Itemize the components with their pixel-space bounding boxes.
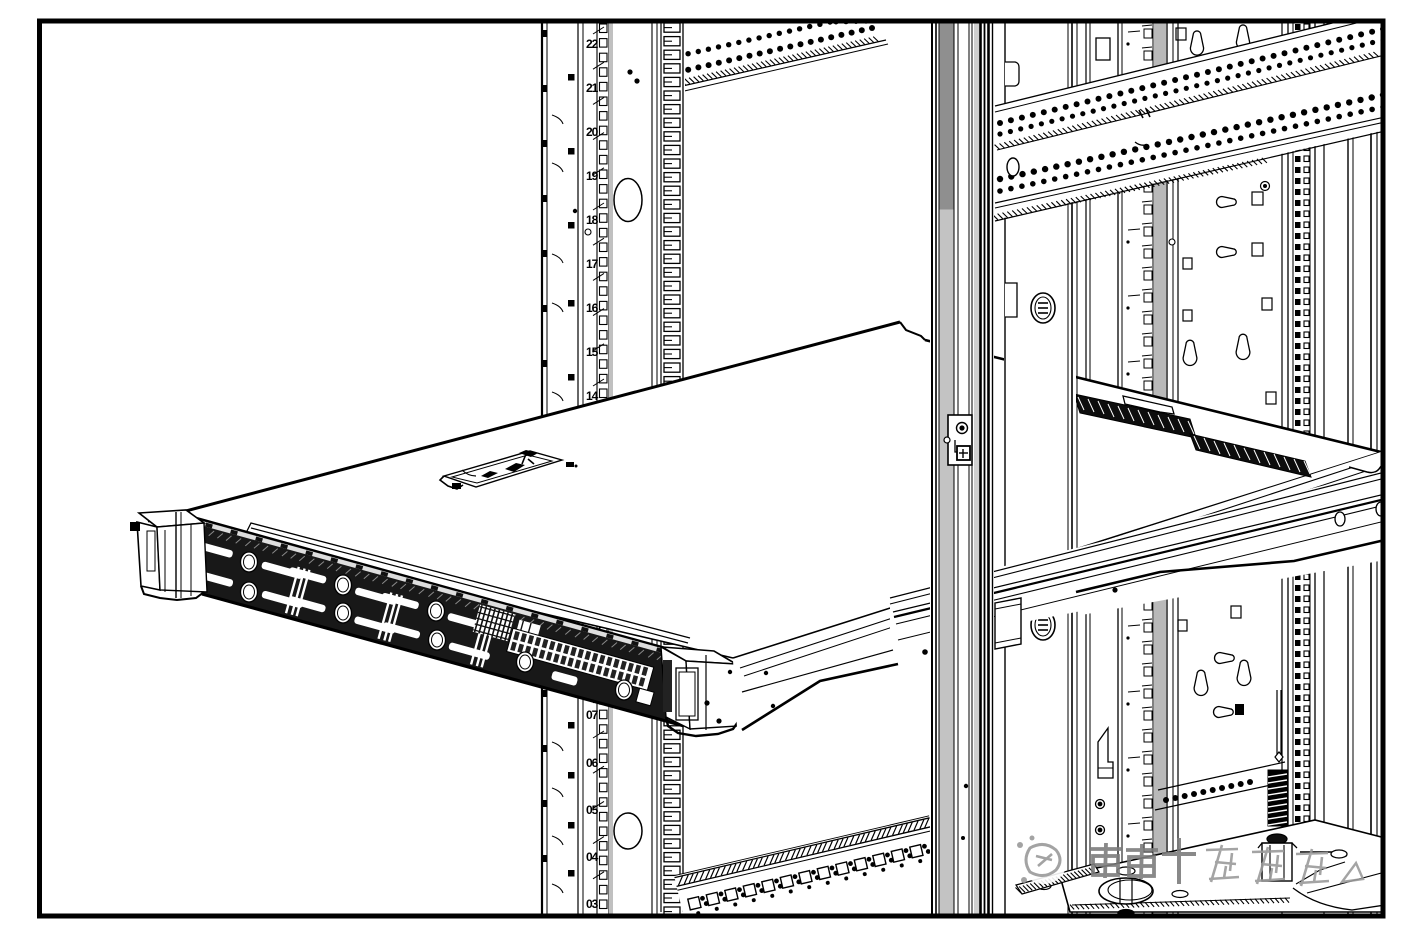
svg-text:20: 20 — [586, 125, 599, 139]
svg-text:04: 04 — [586, 850, 599, 864]
svg-text:19: 19 — [586, 169, 599, 183]
svg-text:06: 06 — [586, 756, 599, 770]
svg-text:15: 15 — [586, 345, 599, 359]
svg-text:17: 17 — [586, 257, 599, 271]
svg-text:21: 21 — [586, 81, 599, 95]
svg-text:05: 05 — [586, 803, 599, 817]
svg-text:18: 18 — [586, 213, 599, 227]
svg-text:16: 16 — [586, 301, 599, 315]
svg-text:03: 03 — [586, 897, 599, 911]
svg-text:22: 22 — [586, 37, 599, 51]
svg-text:07: 07 — [586, 708, 599, 722]
